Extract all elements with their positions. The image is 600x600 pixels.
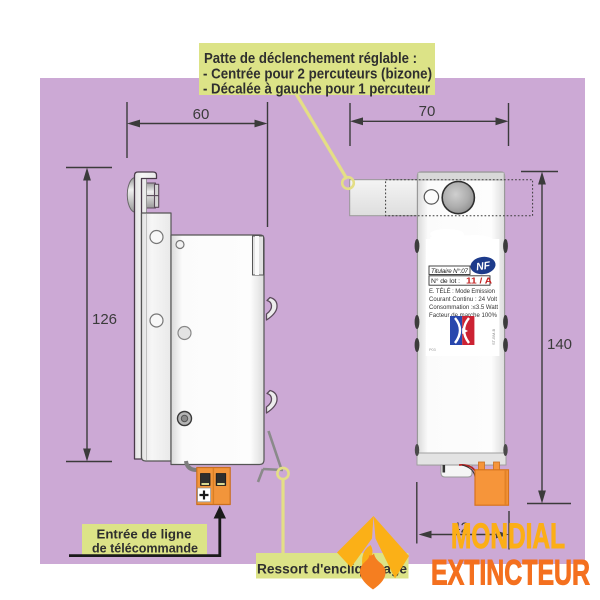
svg-text:MONDIAL: MONDIAL: [451, 516, 565, 556]
svg-text:Patte de déclenchement réglabl: Patte de déclenchement réglable :: [204, 50, 417, 67]
svg-text:de télécommande: de télécommande: [92, 541, 198, 556]
svg-text:Entrée de ligne: Entrée de ligne: [97, 527, 192, 542]
svg-text:70: 70: [419, 103, 436, 120]
svg-text:126: 126: [92, 311, 117, 328]
svg-text:Consommation :≤3.5 Watt: Consommation :≤3.5 Watt: [429, 305, 498, 311]
svg-text:60: 60: [193, 106, 210, 123]
svg-text:Titulaire N°:07: Titulaire N°:07: [431, 268, 469, 275]
svg-text:P03: P03: [429, 348, 436, 352]
svg-text:140: 140: [547, 336, 572, 353]
svg-text:E. TÉLÉ : Mode Emission: E. TÉLÉ : Mode Emission: [429, 288, 495, 295]
svg-text:ST-BM-B: ST-BM-B: [491, 328, 496, 345]
svg-text:11 / A: 11 / A: [466, 277, 492, 286]
svg-text:Courant Continu : 24 Volt: Courant Continu : 24 Volt: [429, 297, 497, 303]
svg-text:N° de lot :: N° de lot :: [431, 277, 460, 285]
svg-text:NF: NF: [475, 259, 491, 273]
svg-text:- Décalée à gauche pour 1 perc: - Décalée à gauche pour 1 percuteur: [203, 81, 430, 98]
svg-text:EXTINCTEUR: EXTINCTEUR: [431, 553, 590, 593]
